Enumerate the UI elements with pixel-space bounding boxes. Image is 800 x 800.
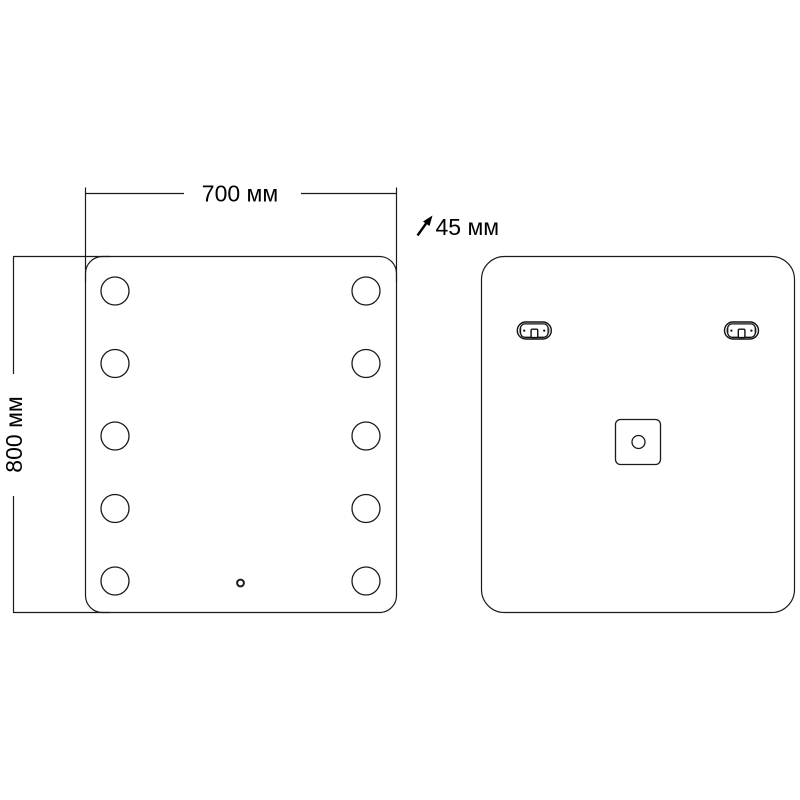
svg-text:700 мм: 700 мм <box>202 181 278 207</box>
svg-text:800 мм: 800 мм <box>1 396 27 472</box>
svg-text:45 мм: 45 мм <box>436 214 500 240</box>
